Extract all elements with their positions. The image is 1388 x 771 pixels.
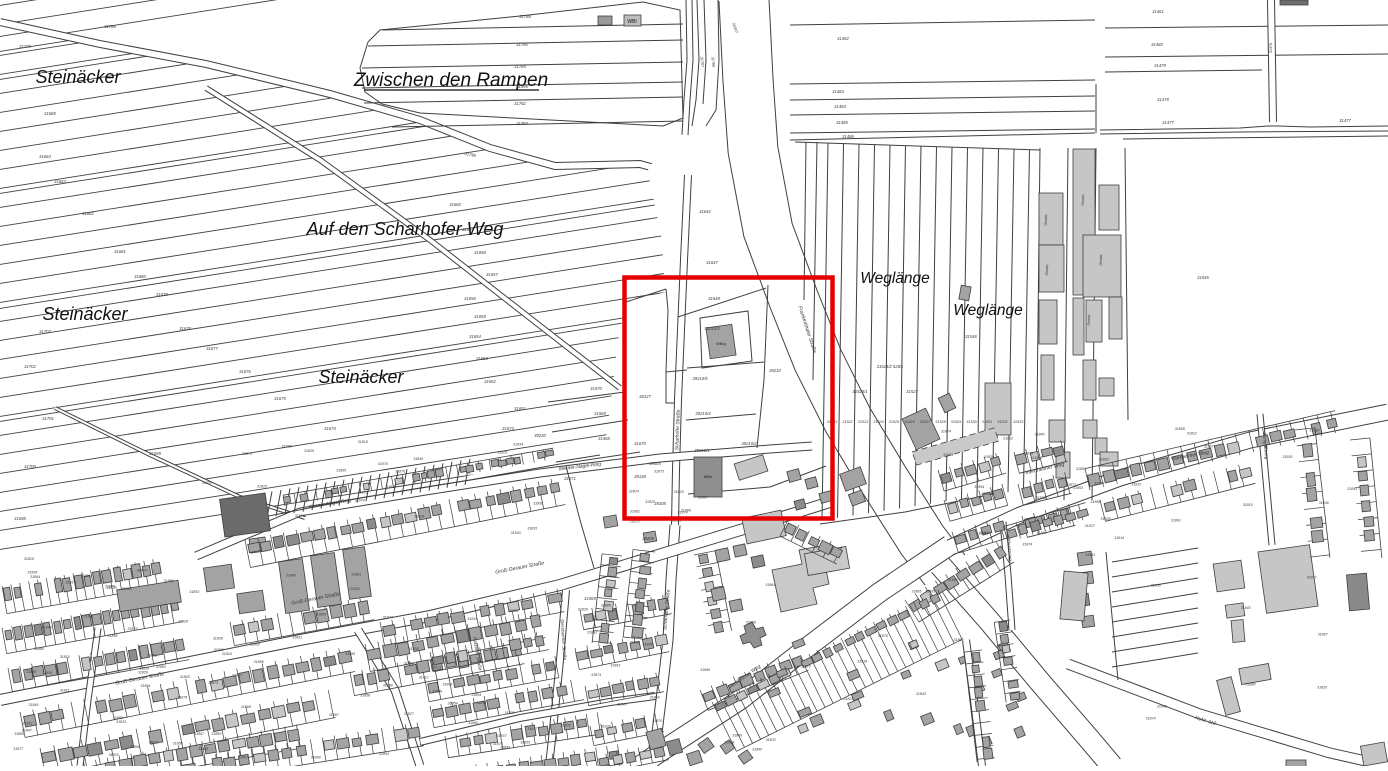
svg-text:31893: 31893: [1099, 458, 1109, 462]
svg-text:31531: 31531: [982, 420, 993, 424]
svg-text:31812: 31812: [1187, 432, 1197, 436]
svg-text:31873: 31873: [148, 740, 158, 744]
svg-text:31647: 31647: [706, 260, 718, 265]
svg-text:31839: 31839: [984, 455, 994, 459]
svg-text:39210/1: 39210/1: [694, 448, 709, 453]
svg-text:31833: 31833: [116, 720, 126, 724]
svg-text:31656: 31656: [464, 296, 476, 301]
svg-text:31820: 31820: [505, 711, 515, 715]
svg-text:31895: 31895: [282, 444, 292, 448]
svg-text:Gewhs: Gewhs: [1081, 194, 1085, 206]
svg-text:31841: 31841: [84, 615, 94, 619]
svg-text:31838: 31838: [213, 636, 223, 640]
svg-text:31829: 31829: [304, 449, 314, 453]
svg-text:31874: 31874: [493, 742, 503, 746]
svg-text:31858: 31858: [360, 694, 370, 698]
svg-text:39210/3: 39210/3: [704, 326, 720, 331]
svg-text:31818: 31818: [857, 660, 867, 664]
svg-text:31685: 31685: [44, 111, 56, 116]
svg-text:Gewhs: Gewhs: [1099, 254, 1103, 266]
svg-text:31876: 31876: [878, 634, 888, 638]
svg-text:31477: 31477: [1339, 118, 1351, 123]
svg-text:31813: 31813: [431, 666, 441, 670]
svg-text:31525: 31525: [889, 420, 900, 424]
svg-text:31678: 31678: [179, 326, 191, 331]
svg-text:31673: 31673: [502, 426, 514, 431]
svg-text:31674: 31674: [324, 426, 336, 431]
svg-text:31818: 31818: [358, 440, 368, 444]
svg-text:31876: 31876: [395, 470, 405, 474]
svg-text:31855: 31855: [520, 741, 530, 745]
svg-text:31849: 31849: [28, 703, 38, 707]
svg-text:39138: 39138: [634, 474, 646, 479]
svg-text:31873: 31873: [1066, 483, 1076, 487]
svg-text:31845: 31845: [413, 457, 423, 461]
svg-text:31568: 31568: [598, 436, 610, 441]
svg-text:31833: 31833: [766, 738, 776, 742]
svg-text:31854: 31854: [500, 746, 510, 750]
svg-text:31779: 31779: [19, 44, 31, 49]
svg-text:31476: 31476: [1269, 42, 1273, 54]
svg-text:31874: 31874: [137, 569, 147, 573]
svg-text:31869: 31869: [732, 734, 742, 738]
svg-text:31833: 31833: [202, 481, 212, 485]
svg-text:31784: 31784: [514, 64, 526, 69]
svg-text:31854: 31854: [448, 702, 458, 706]
svg-text:31874: 31874: [1146, 717, 1156, 721]
svg-text:31854: 31854: [140, 684, 150, 688]
svg-text:31829: 31829: [674, 490, 684, 494]
svg-text:31886: 31886: [601, 603, 611, 607]
svg-text:31826: 31826: [138, 670, 148, 674]
svg-text:31653: 31653: [476, 356, 488, 361]
svg-text:31860: 31860: [468, 721, 478, 725]
svg-text:31545: 31545: [1197, 275, 1209, 280]
svg-text:31825: 31825: [257, 484, 267, 488]
svg-text:31863: 31863: [82, 574, 92, 578]
svg-text:31875: 31875: [242, 452, 252, 456]
svg-text:31829: 31829: [414, 515, 424, 519]
svg-text:31486: 31486: [842, 134, 854, 139]
svg-text:31810: 31810: [1131, 483, 1141, 487]
svg-text:31869: 31869: [311, 756, 321, 760]
svg-text:31874: 31874: [678, 510, 688, 514]
svg-text:31782: 31782: [514, 101, 526, 106]
svg-text:39230: 39230: [534, 433, 546, 438]
svg-text:31817: 31817: [66, 580, 77, 584]
svg-text:31528: 31528: [935, 420, 946, 424]
svg-text:31888: 31888: [14, 732, 24, 736]
svg-text:31832: 31832: [981, 492, 991, 496]
svg-text:31844: 31844: [1094, 481, 1104, 485]
svg-text:31865: 31865: [911, 589, 921, 593]
svg-text:39210/4: 39210/4: [695, 411, 711, 416]
svg-text:31529: 31529: [951, 420, 962, 424]
svg-text:31834: 31834: [42, 671, 52, 675]
svg-text:39005: 39005: [649, 461, 661, 466]
svg-text:31836: 31836: [27, 571, 37, 575]
svg-text:31850: 31850: [211, 732, 221, 736]
svg-text:31838: 31838: [26, 670, 36, 674]
svg-text:31852: 31852: [1076, 467, 1086, 471]
svg-text:31867: 31867: [1318, 632, 1329, 636]
svg-text:31652: 31652: [484, 379, 496, 384]
svg-text:31815: 31815: [1243, 503, 1253, 507]
svg-text:31648: 31648: [708, 296, 720, 301]
svg-text:31864: 31864: [30, 575, 40, 579]
svg-text:31839: 31839: [724, 741, 734, 745]
svg-text:31834: 31834: [513, 443, 523, 447]
svg-text:31891: 31891: [509, 609, 519, 613]
svg-text:Gewhs: Gewhs: [1087, 314, 1091, 326]
svg-text:31786: 31786: [104, 24, 116, 29]
svg-text:31702: 31702: [24, 364, 36, 369]
svg-text:31830: 31830: [1282, 455, 1292, 459]
svg-text:31824: 31824: [222, 652, 232, 656]
svg-text:31671: 31671: [564, 476, 576, 481]
svg-text:31462: 31462: [837, 36, 849, 41]
svg-text:31856: 31856: [533, 501, 543, 505]
svg-text:31863: 31863: [954, 638, 964, 642]
svg-text:31863: 31863: [316, 613, 326, 617]
svg-text:31880: 31880: [34, 647, 44, 651]
svg-text:31895: 31895: [108, 634, 118, 638]
svg-text:31867: 31867: [194, 732, 205, 736]
svg-text:31871: 31871: [358, 490, 368, 494]
svg-text:31842: 31842: [1157, 704, 1167, 708]
svg-text:31683: 31683: [54, 179, 66, 184]
svg-text:31861: 31861: [292, 636, 302, 640]
svg-text:31873: 31873: [654, 470, 664, 474]
svg-text:Weglänge: Weglänge: [860, 270, 930, 287]
svg-text:31655: 31655: [474, 314, 486, 319]
svg-text:31828: 31828: [1100, 517, 1110, 521]
svg-text:31888: 31888: [198, 747, 208, 751]
svg-text:31480: 31480: [1151, 42, 1163, 47]
svg-text:31895: 31895: [345, 652, 355, 656]
svg-text:31886: 31886: [164, 579, 174, 583]
svg-text:31681: 31681: [114, 249, 126, 254]
svg-text:31869: 31869: [383, 683, 393, 687]
svg-text:31785: 31785: [516, 42, 528, 47]
svg-text:31894: 31894: [974, 485, 984, 489]
svg-text:31757: 31757: [516, 121, 528, 126]
svg-text:Steinäcker: Steinäcker: [42, 304, 128, 324]
svg-text:31813: 31813: [476, 701, 486, 705]
svg-text:31873: 31873: [127, 627, 137, 631]
svg-text:31679: 31679: [156, 292, 168, 297]
svg-text:31657: 31657: [486, 272, 498, 277]
svg-text:31888: 31888: [432, 689, 442, 693]
svg-text:31532: 31532: [997, 420, 1008, 424]
svg-text:39208: 39208: [654, 501, 666, 506]
svg-text:31843: 31843: [511, 531, 521, 535]
svg-text:31899: 31899: [113, 716, 123, 720]
svg-text:31527: 31527: [920, 420, 931, 424]
svg-text:31890: 31890: [1309, 429, 1319, 433]
svg-text:31843: 31843: [1241, 606, 1251, 610]
svg-text:31874: 31874: [629, 489, 639, 493]
svg-text:31889: 31889: [254, 660, 264, 664]
svg-text:31870: 31870: [1023, 452, 1033, 456]
svg-text:31654: 31654: [469, 334, 481, 339]
svg-text:31855: 31855: [130, 745, 140, 749]
svg-text:31684: 31684: [39, 154, 51, 159]
svg-text:31893: 31893: [610, 663, 620, 667]
svg-text:31817: 31817: [527, 727, 538, 731]
svg-text:31483: 31483: [832, 89, 844, 94]
svg-text:31893: 31893: [122, 587, 132, 591]
svg-text:31812: 31812: [1003, 436, 1013, 440]
svg-text:31530: 31530: [966, 420, 977, 424]
svg-text:31874: 31874: [383, 615, 393, 619]
svg-text:31820: 31820: [1317, 686, 1327, 690]
svg-text:31867: 31867: [238, 756, 249, 760]
svg-text:31864: 31864: [765, 583, 775, 587]
svg-text:31670: 31670: [634, 441, 646, 446]
svg-text:31527: 31527: [906, 389, 918, 394]
svg-text:31894: 31894: [471, 693, 481, 697]
svg-text:Gewhs: Gewhs: [1044, 214, 1048, 226]
svg-text:31895: 31895: [336, 469, 346, 473]
svg-text:31897: 31897: [698, 495, 709, 499]
svg-text:31812: 31812: [419, 676, 429, 680]
svg-text:31485: 31485: [836, 120, 848, 125]
svg-text:31825: 31825: [497, 451, 507, 455]
svg-text:31853: 31853: [404, 662, 414, 666]
svg-text:31533: 31533: [1013, 420, 1024, 424]
svg-text:31821: 31821: [843, 697, 853, 701]
svg-text:31826: 31826: [578, 608, 588, 612]
svg-text:31682: 31682: [82, 211, 94, 216]
svg-text:31842: 31842: [978, 532, 988, 536]
svg-text:31569: 31569: [594, 411, 606, 416]
svg-text:31897: 31897: [329, 713, 340, 717]
svg-text:31546: 31546: [965, 334, 977, 339]
svg-text:31892: 31892: [587, 631, 597, 635]
svg-text:31858: 31858: [1091, 500, 1101, 504]
svg-text:31700: 31700: [24, 464, 36, 469]
svg-text:31843: 31843: [617, 702, 627, 706]
svg-text:31856: 31856: [173, 742, 183, 746]
svg-text:31820: 31820: [1037, 531, 1047, 535]
svg-text:31479: 31479: [1154, 63, 1166, 68]
svg-text:31528/1: 31528/1: [852, 389, 867, 394]
svg-text:WHs: WHs: [704, 475, 712, 479]
svg-text:31877: 31877: [1307, 575, 1318, 579]
svg-text:31837: 31837: [497, 734, 508, 738]
svg-text:31838: 31838: [642, 643, 652, 647]
svg-text:31675: 31675: [274, 396, 286, 401]
svg-text:31825: 31825: [109, 753, 119, 757]
svg-text:31834: 31834: [467, 617, 477, 621]
svg-text:31836: 31836: [1036, 496, 1046, 500]
svg-text:31595: 31595: [516, 84, 528, 89]
svg-text:31703: 31703: [39, 329, 51, 334]
svg-text:31854: 31854: [650, 695, 660, 699]
svg-text:31677: 31677: [206, 346, 218, 351]
svg-text:31843: 31843: [442, 683, 452, 687]
svg-text:31680: 31680: [134, 274, 146, 279]
svg-text:31843: 31843: [948, 578, 958, 582]
svg-text:31853: 31853: [189, 590, 199, 594]
svg-text:31866: 31866: [700, 668, 710, 672]
svg-text:31878: 31878: [107, 586, 117, 590]
svg-text:31876: 31876: [561, 724, 571, 728]
svg-text:31874: 31874: [591, 673, 601, 677]
svg-text:31820: 31820: [645, 500, 655, 504]
svg-text:31870: 31870: [652, 719, 662, 723]
svg-text:31526: 31526: [904, 420, 915, 424]
svg-text:31846: 31846: [1319, 501, 1329, 505]
svg-text:Weglänge: Weglänge: [953, 302, 1023, 319]
svg-text:31841: 31841: [1347, 487, 1357, 491]
svg-text:31461: 31461: [1152, 9, 1164, 14]
svg-text:31828: 31828: [178, 619, 188, 623]
svg-text:31829: 31829: [24, 557, 34, 561]
svg-text:31873: 31873: [208, 681, 218, 685]
svg-text:31788: 31788: [519, 14, 531, 19]
svg-text:31832: 31832: [350, 587, 360, 591]
svg-text:31868: 31868: [630, 641, 640, 645]
svg-text:31698: 31698: [14, 516, 26, 521]
svg-text:31522: 31522: [842, 420, 853, 424]
svg-text:39205: 39205: [642, 536, 654, 541]
svg-text:WBrg: WBrg: [716, 342, 726, 346]
svg-text:31817: 31817: [232, 674, 243, 678]
svg-text:31524: 31524: [873, 420, 884, 424]
svg-text:31874: 31874: [295, 514, 305, 518]
svg-text:31839: 31839: [601, 724, 611, 728]
svg-text:31893: 31893: [379, 752, 389, 756]
svg-text:31874: 31874: [1022, 543, 1032, 547]
svg-text:31651: 31651: [514, 406, 526, 411]
svg-text:31891: 31891: [1171, 519, 1181, 523]
svg-text:31883: 31883: [156, 665, 166, 669]
svg-text:31816: 31816: [1114, 536, 1124, 540]
svg-text:31642: 31642: [699, 209, 711, 214]
svg-text:31484: 31484: [834, 104, 846, 109]
svg-text:31876: 31876: [378, 462, 388, 466]
svg-text:31835: 31835: [409, 647, 419, 651]
svg-text:31827: 31827: [404, 712, 415, 716]
svg-text:31858: 31858: [1175, 427, 1185, 431]
svg-text:31881: 31881: [351, 573, 361, 577]
svg-text:31659: 31659: [462, 227, 474, 232]
svg-text:31840: 31840: [1035, 433, 1045, 437]
svg-text:31876: 31876: [177, 695, 187, 699]
svg-text:31843: 31843: [180, 675, 190, 679]
svg-text:31524/2 528/1: 31524/2 528/1: [877, 364, 904, 369]
svg-text:31815: 31815: [60, 655, 70, 659]
svg-text:31823: 31823: [386, 485, 396, 489]
svg-text:31875: 31875: [801, 664, 811, 668]
svg-text:38127: 38127: [639, 394, 651, 399]
svg-text:31478: 31478: [1157, 97, 1169, 102]
svg-text:31570: 31570: [590, 386, 602, 391]
svg-text:31843: 31843: [1032, 456, 1042, 460]
svg-text:39210/2: 39210/2: [741, 441, 757, 446]
svg-text:31856: 31856: [1151, 584, 1161, 588]
svg-text:31848: 31848: [286, 573, 296, 577]
svg-text:31860: 31860: [752, 748, 762, 752]
svg-text:31850: 31850: [250, 643, 260, 647]
svg-text:Gewhs: Gewhs: [1045, 264, 1049, 276]
svg-text:31849: 31849: [943, 453, 953, 457]
svg-text:31835: 31835: [527, 526, 537, 530]
svg-text:31569: 31569: [584, 596, 596, 601]
svg-text:31874: 31874: [941, 429, 951, 433]
svg-text:31699: 31699: [149, 451, 161, 456]
svg-text:31843: 31843: [916, 692, 926, 696]
svg-text:31658: 31658: [474, 250, 486, 255]
svg-text:31843: 31843: [42, 626, 52, 630]
svg-text:31892: 31892: [630, 509, 640, 513]
svg-text:31856: 31856: [746, 621, 756, 625]
svg-text:Steinäcker: Steinäcker: [35, 67, 121, 87]
svg-text:31477: 31477: [1162, 120, 1174, 125]
svg-text:31837: 31837: [1085, 524, 1096, 528]
svg-text:39210: 39210: [769, 368, 781, 373]
svg-text:39210/5: 39210/5: [692, 376, 708, 381]
svg-text:31822: 31822: [22, 721, 32, 725]
svg-text:31660: 31660: [449, 202, 461, 207]
svg-text:31676: 31676: [239, 369, 251, 374]
svg-text:31523: 31523: [858, 420, 869, 424]
svg-text:31843: 31843: [1085, 553, 1095, 557]
svg-text:31867: 31867: [1204, 444, 1215, 448]
svg-text:31895: 31895: [925, 590, 935, 594]
svg-text:31701: 31701: [42, 416, 54, 421]
svg-text:Steinäcker: Steinäcker: [318, 367, 404, 387]
svg-text:31877: 31877: [13, 747, 24, 751]
svg-text:31861: 31861: [147, 653, 157, 657]
svg-text:31890: 31890: [1246, 683, 1256, 687]
svg-text:31874: 31874: [355, 498, 365, 502]
svg-text:31868: 31868: [241, 705, 251, 709]
svg-text:WBl: WBl: [627, 19, 636, 25]
svg-text:31811: 31811: [60, 689, 70, 693]
